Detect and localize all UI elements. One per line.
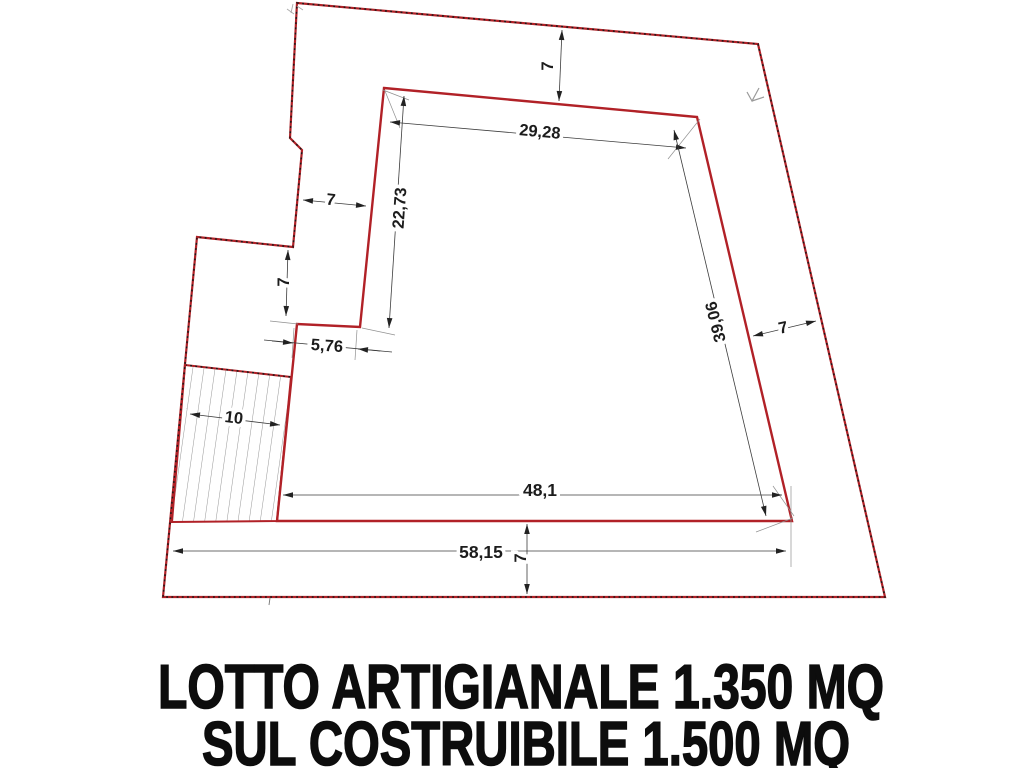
site-plan-page: 7 29,28 22,73 7 7 5,76 10 39,06 7 48,1 5…	[0, 0, 1024, 768]
hatched-access-strip	[172, 365, 291, 522]
caption-line-2: SUL COSTRUIBILE 1.500 MQ	[202, 710, 850, 768]
site-plan-drawing: 7 29,28 22,73 7 7 5,76 10 39,06 7 48,1 5…	[0, 0, 1024, 768]
dim-label-upper-left-height: 22,73	[390, 187, 411, 229]
dim-label-left-jog-width: 5,76	[310, 336, 343, 356]
dim-label-top-setback: 7	[539, 61, 557, 70]
dim-label-bottom-inner-width: 48,1	[523, 480, 557, 500]
dim-label-access-strip-width: 10	[224, 408, 244, 428]
dim-label-top-width: 29,28	[519, 121, 562, 143]
dim-label-left-setback: 7	[325, 191, 336, 210]
dim-label-bottom-setback: 7	[512, 553, 530, 562]
caption: LOTTO ARTIGIANALE 1.350 MQ SUL COSTRUIBI…	[158, 653, 884, 768]
dim-label-bottom-outer-width: 58,15	[459, 542, 503, 562]
dim-label-left-step-height: 7	[275, 277, 293, 286]
